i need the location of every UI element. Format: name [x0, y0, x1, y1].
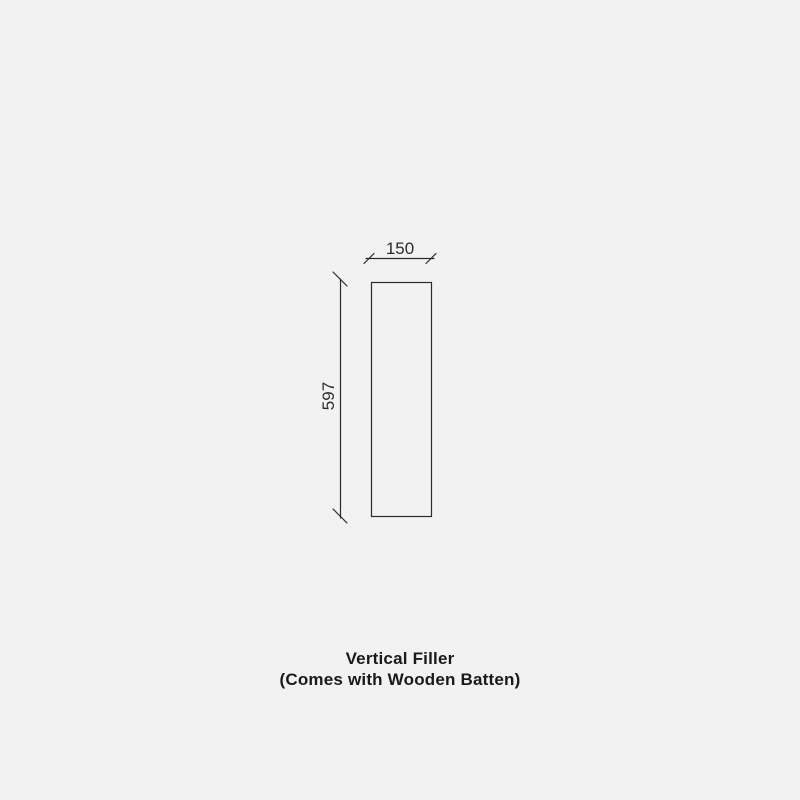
caption-subtitle: (Comes with Wooden Batten): [0, 669, 800, 690]
caption: Vertical Filler (Comes with Wooden Batte…: [0, 648, 800, 690]
caption-title: Vertical Filler: [0, 648, 800, 669]
height-dimension-label: 597: [319, 382, 338, 410]
filler-panel-outline: [372, 283, 432, 517]
width-dimension-label: 150: [386, 239, 414, 258]
